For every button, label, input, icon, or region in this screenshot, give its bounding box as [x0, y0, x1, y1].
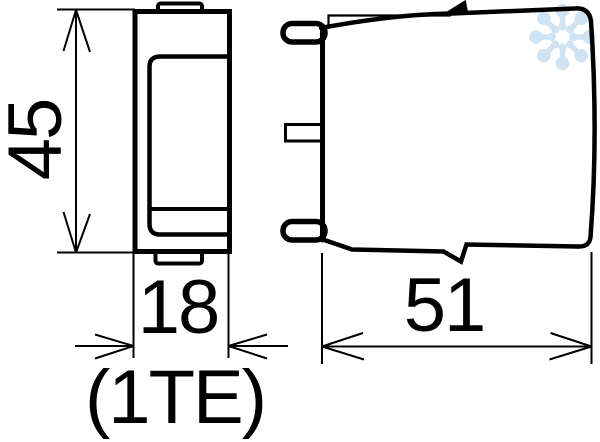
- front-view: [135, 4, 230, 264]
- side-latch-tab: [447, 2, 468, 14]
- terminal-pin-top: [283, 24, 325, 43]
- arrowhead: [322, 347, 364, 360]
- side-bottom-edge: [322, 239, 579, 262]
- side-view: [283, 2, 595, 262]
- dimension-width-label: 18: [138, 270, 219, 346]
- dimension-width-note-label: (1TE): [85, 360, 265, 436]
- arrowhead: [76, 214, 90, 253]
- arrowhead: [64, 212, 77, 253]
- dimensional-drawing: 45 18 (1TE) 51: [0, 0, 600, 442]
- arrowhead: [551, 333, 592, 347]
- arrowhead: [76, 10, 90, 52]
- arrowhead: [322, 333, 363, 347]
- arrowhead: [95, 335, 134, 347]
- dimension-height-label: 45: [0, 100, 74, 181]
- arrowhead: [64, 10, 77, 51]
- terminal-pin-middle: [286, 125, 323, 142]
- arrowhead: [229, 335, 268, 347]
- arrowhead: [550, 347, 592, 360]
- dimension-depth-label: 51: [404, 268, 485, 344]
- terminal-pin-bottom: [283, 222, 325, 241]
